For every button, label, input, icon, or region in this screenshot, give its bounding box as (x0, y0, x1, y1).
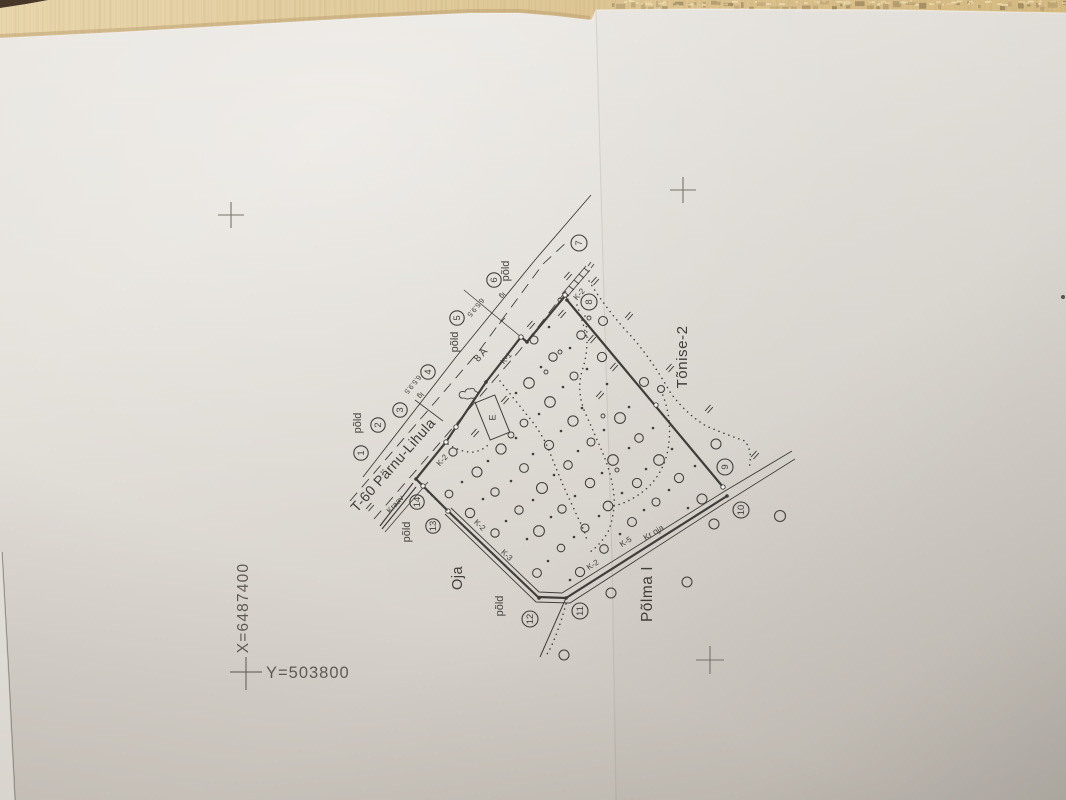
svg-text:4: 4 (423, 369, 434, 374)
svg-text:põld: põld (500, 261, 512, 282)
svg-text:6: 6 (489, 277, 500, 282)
svg-text:11: 11 (575, 606, 586, 616)
svg-text:Põlma I: Põlma I (639, 566, 656, 622)
svg-text:5: 5 (452, 315, 463, 320)
svg-text:E: E (488, 414, 498, 420)
svg-text:13: 13 (428, 521, 439, 532)
svg-text:põld: põld (352, 413, 364, 434)
svg-text:14: 14 (412, 497, 423, 508)
svg-text:põld: põld (401, 522, 413, 543)
svg-text:Oja: Oja (450, 566, 466, 591)
svg-text:1: 1 (356, 450, 367, 455)
svg-text:Y=503800: Y=503800 (266, 664, 350, 682)
svg-text:12: 12 (525, 614, 536, 625)
svg-text:10: 10 (736, 505, 747, 516)
svg-text:põld: põld (494, 596, 506, 617)
svg-text:8: 8 (584, 299, 595, 304)
svg-text:7: 7 (574, 240, 585, 245)
svg-text:X=6487400: X=6487400 (235, 563, 252, 654)
svg-text:põld: põld (449, 332, 461, 353)
svg-text:Tõnise-2: Tõnise-2 (674, 325, 691, 388)
svg-text:3: 3 (395, 407, 406, 412)
svg-text:9: 9 (720, 464, 731, 469)
svg-text:2: 2 (373, 422, 384, 427)
